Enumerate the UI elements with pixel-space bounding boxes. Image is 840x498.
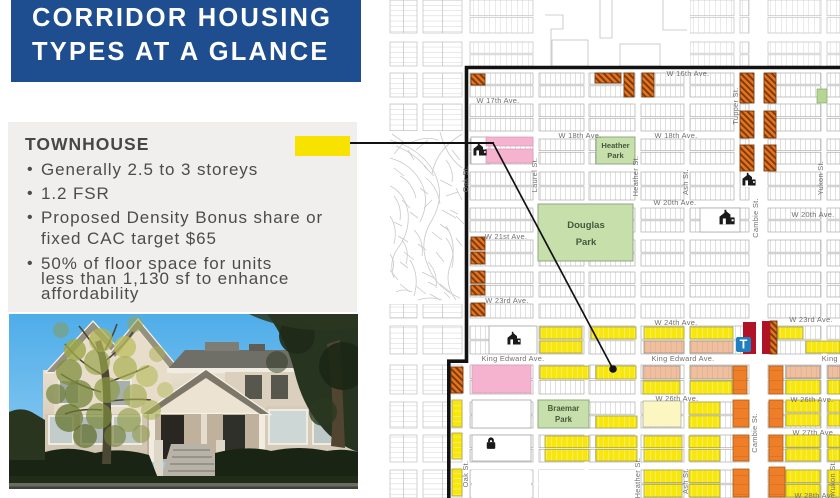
svg-text:Braemar: Braemar — [548, 404, 580, 413]
svg-text:W 23rd Ave.: W 23rd Ave. — [789, 315, 832, 324]
svg-text:Park: Park — [607, 151, 624, 160]
svg-text:Cambie St.: Cambie St. — [750, 413, 759, 453]
svg-text:W 18th Ave.: W 18th Ave. — [654, 131, 697, 140]
svg-text:W 24th Ave.: W 24th Ave. — [654, 318, 697, 327]
svg-text:W 26th Ave.: W 26th Ave. — [790, 395, 833, 404]
svg-text:W 23rd Ave.: W 23rd Ave. — [485, 296, 528, 305]
svg-text:King Edward Ave.: King Edward Ave. — [651, 354, 714, 363]
svg-text:W 20th Ave.: W 20th Ave. — [653, 198, 696, 207]
svg-text:Laurel St.: Laurel St. — [530, 158, 539, 193]
svg-text:Douglas: Douglas — [567, 220, 604, 231]
svg-text:Heather St.: Heather St. — [631, 156, 640, 197]
svg-text:W 27th Ave.: W 27th Ave. — [792, 428, 835, 437]
svg-text:Ash St.: Ash St. — [681, 468, 690, 494]
svg-text:Ash St.: Ash St. — [681, 169, 690, 195]
svg-text:W 17th Ave.: W 17th Ave. — [476, 96, 519, 105]
svg-text:W 18th Ave.: W 18th Ave. — [558, 131, 601, 140]
svg-text:Heather St.: Heather St. — [633, 458, 642, 498]
svg-text:Park: Park — [576, 237, 597, 248]
svg-text:Park: Park — [555, 415, 573, 424]
svg-text:King Edward A: King Edward A — [822, 354, 840, 363]
svg-text:Oak St.: Oak St. — [461, 461, 470, 488]
svg-text:Tupper St.: Tupper St. — [731, 87, 740, 124]
svg-text:King Edward Ave.: King Edward Ave. — [481, 354, 544, 363]
svg-text:T: T — [740, 338, 748, 352]
svg-text:Oak St.: Oak St. — [461, 166, 470, 193]
svg-text:Yukon St.: Yukon St. — [828, 461, 837, 495]
svg-text:W 21st Ave.: W 21st Ave. — [485, 232, 528, 241]
svg-text:W 20th Ave.: W 20th Ave. — [791, 210, 834, 219]
svg-text:W 16th Ave.: W 16th Ave. — [666, 69, 709, 78]
svg-text:Heather: Heather — [601, 141, 629, 150]
svg-text:Cambie St.: Cambie St. — [751, 198, 760, 238]
svg-text:W 26th Ave.: W 26th Ave. — [655, 394, 698, 403]
svg-text:Yukon St.: Yukon St. — [816, 161, 825, 195]
